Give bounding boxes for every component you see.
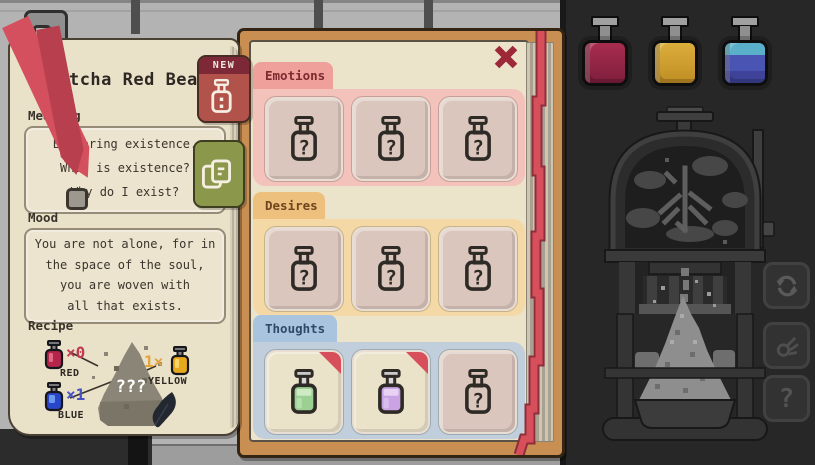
bottle-neck xyxy=(668,26,682,41)
blue-name: BLUE xyxy=(58,410,84,421)
red-ingredient-bottle-icon xyxy=(42,340,66,370)
crafting-station-panel: ? xyxy=(560,0,815,465)
blue-potion-bottle[interactable] xyxy=(722,16,768,86)
red-potion-bottle[interactable] xyxy=(582,16,628,86)
close-icon[interactable] xyxy=(492,43,520,71)
refresh-icon xyxy=(773,272,801,300)
yellow-count: 1× xyxy=(144,352,163,371)
blue-count: ×1 xyxy=(66,385,85,404)
bottle-neck xyxy=(598,26,612,41)
help-button[interactable]: ? xyxy=(763,375,810,422)
hand-icon xyxy=(773,332,801,360)
wall-divider xyxy=(131,0,140,34)
mood-box: You are not alone, for in the space of t… xyxy=(24,228,226,324)
mood-line: You are not alone, for in xyxy=(26,234,224,255)
red-count: ×0 xyxy=(66,343,85,362)
ribbon-clasp xyxy=(66,188,88,210)
bottle-body xyxy=(722,40,768,86)
yellow-name: YELLOW xyxy=(148,376,187,387)
wall-panel-inner-line xyxy=(0,10,560,12)
blue-ingredient-bottle-icon xyxy=(42,382,66,412)
copy-icon xyxy=(195,157,238,191)
machine-handle xyxy=(657,112,713,121)
bottle-body xyxy=(652,40,698,86)
mood-line: all that exists. xyxy=(26,296,224,317)
recipe-book: Emotions ? ? xyxy=(237,28,565,458)
serving-bowl xyxy=(635,400,735,428)
wall-panel-line xyxy=(0,0,560,3)
yellow-potion-bottle[interactable] xyxy=(652,16,698,86)
game-screen: Emotions ? ? xyxy=(0,0,815,465)
bookmark-ribbon xyxy=(240,31,562,455)
recipe-label: Recipe xyxy=(28,318,73,333)
bottle-neck xyxy=(738,26,752,41)
mood-line: the space of the soul, xyxy=(26,255,224,276)
crank-knob xyxy=(763,222,774,236)
serve-button[interactable] xyxy=(763,322,810,369)
red-name: RED xyxy=(60,368,80,379)
question-icon: ? xyxy=(779,386,795,412)
svg-text:???: ??? xyxy=(116,377,147,397)
copy-recipes-tab[interactable] xyxy=(193,140,245,208)
new-flavor-tab[interactable]: NEW xyxy=(197,55,251,123)
bottle-body xyxy=(582,40,628,86)
yellow-ingredient-bottle-icon xyxy=(168,346,192,376)
refresh-button[interactable] xyxy=(763,262,810,309)
mood-line: you are woven with xyxy=(26,275,224,296)
mood-label: Mood xyxy=(28,210,58,225)
bottle-icon xyxy=(199,79,244,115)
new-badge: NEW xyxy=(199,57,249,74)
